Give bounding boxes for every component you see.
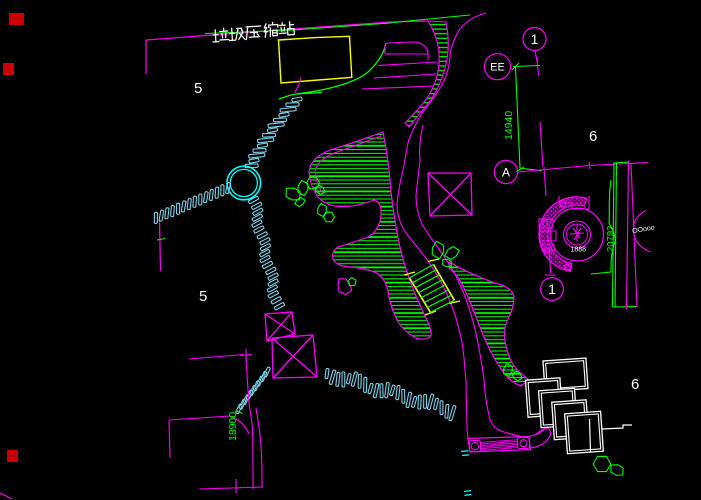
svg-text:6: 6	[589, 128, 597, 145]
svg-text:EE: EE	[490, 62, 505, 74]
svg-text:A: A	[502, 165, 510, 179]
svg-text:5: 5	[199, 288, 207, 305]
svg-text:20792: 20792	[606, 226, 617, 252]
svg-text:5: 5	[194, 80, 202, 97]
svg-text:18900: 18900	[227, 412, 239, 441]
svg-text:1: 1	[531, 31, 539, 47]
svg-text:6: 6	[631, 376, 639, 393]
svg-text:14940: 14940	[503, 111, 515, 140]
svg-text:1888: 1888	[571, 247, 587, 254]
svg-text:1: 1	[548, 281, 556, 297]
